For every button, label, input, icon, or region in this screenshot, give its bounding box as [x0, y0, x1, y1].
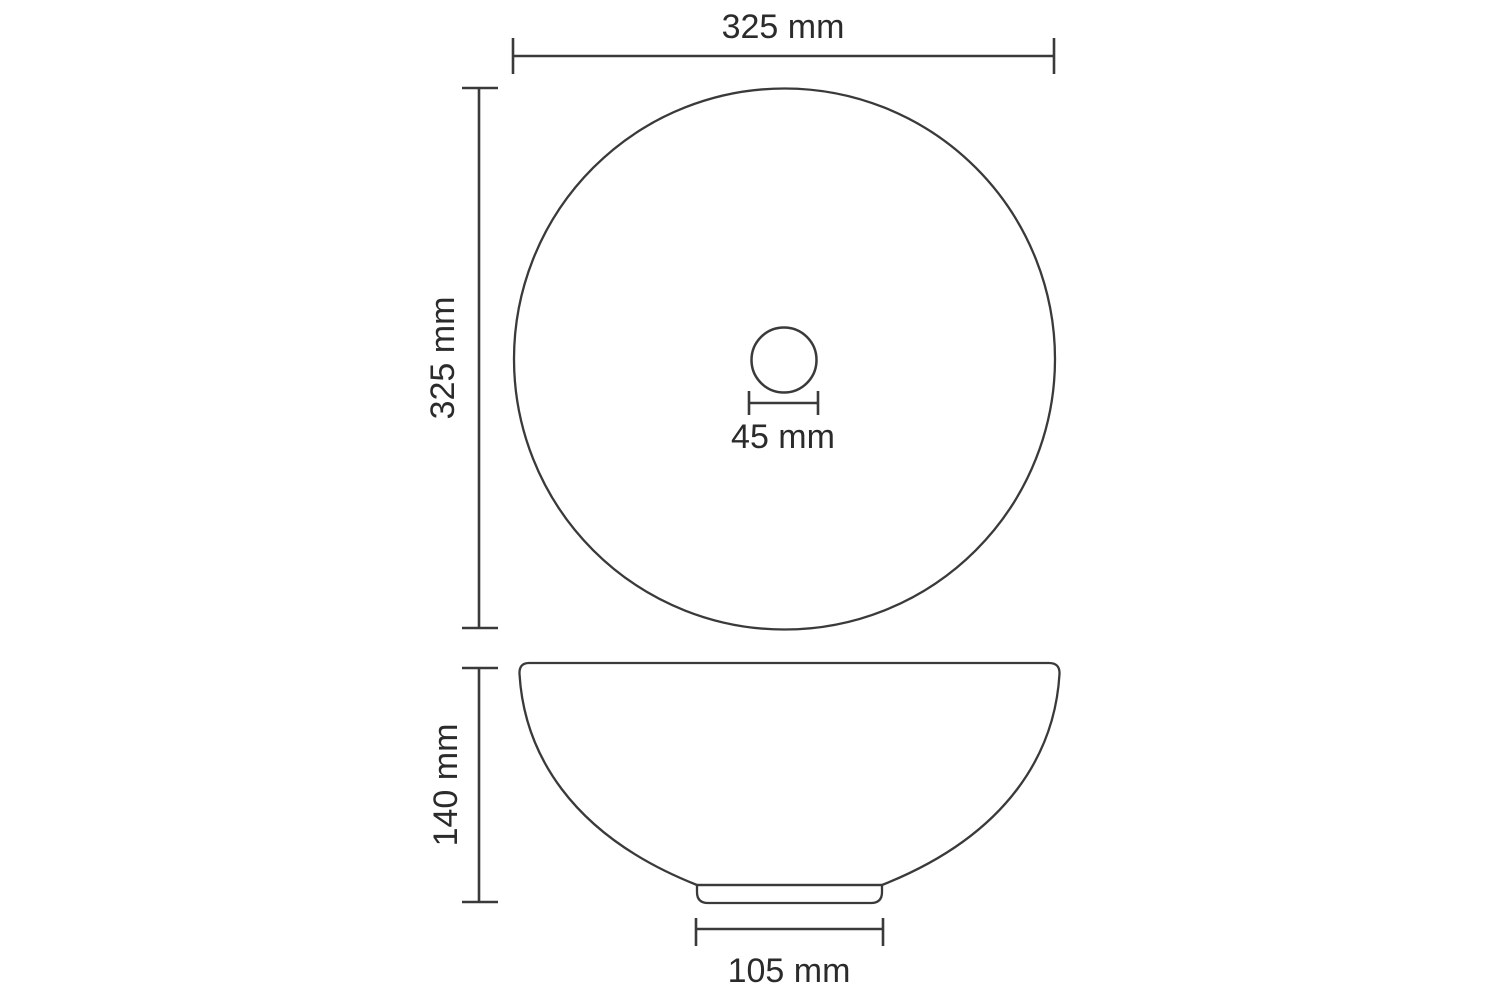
dim-bowl-height: [462, 668, 498, 902]
basin-outline-circle: [514, 89, 1055, 630]
label-bowl-height: 140 mm: [429, 724, 463, 847]
dim-base-width: [696, 918, 883, 946]
label-drain-diameter: 45 mm: [731, 420, 835, 454]
bowl-outline: [519, 663, 1059, 885]
label-circle-height: 325 mm: [426, 297, 460, 420]
side-view: [519, 663, 1059, 903]
base-foot-outline: [697, 885, 882, 903]
label-base-width: 105 mm: [728, 954, 851, 988]
dim-drain-diameter: [749, 391, 818, 415]
label-top-width: 325 mm: [722, 10, 845, 44]
dim-circle-height: [462, 88, 498, 628]
basin-dimension-drawing: [0, 0, 1500, 1000]
top-view: [514, 89, 1055, 630]
technical-drawing-canvas: 325 mm 325 mm 45 mm 140 mm 105 mm: [0, 0, 1500, 1000]
drain-hole-circle: [752, 328, 817, 393]
